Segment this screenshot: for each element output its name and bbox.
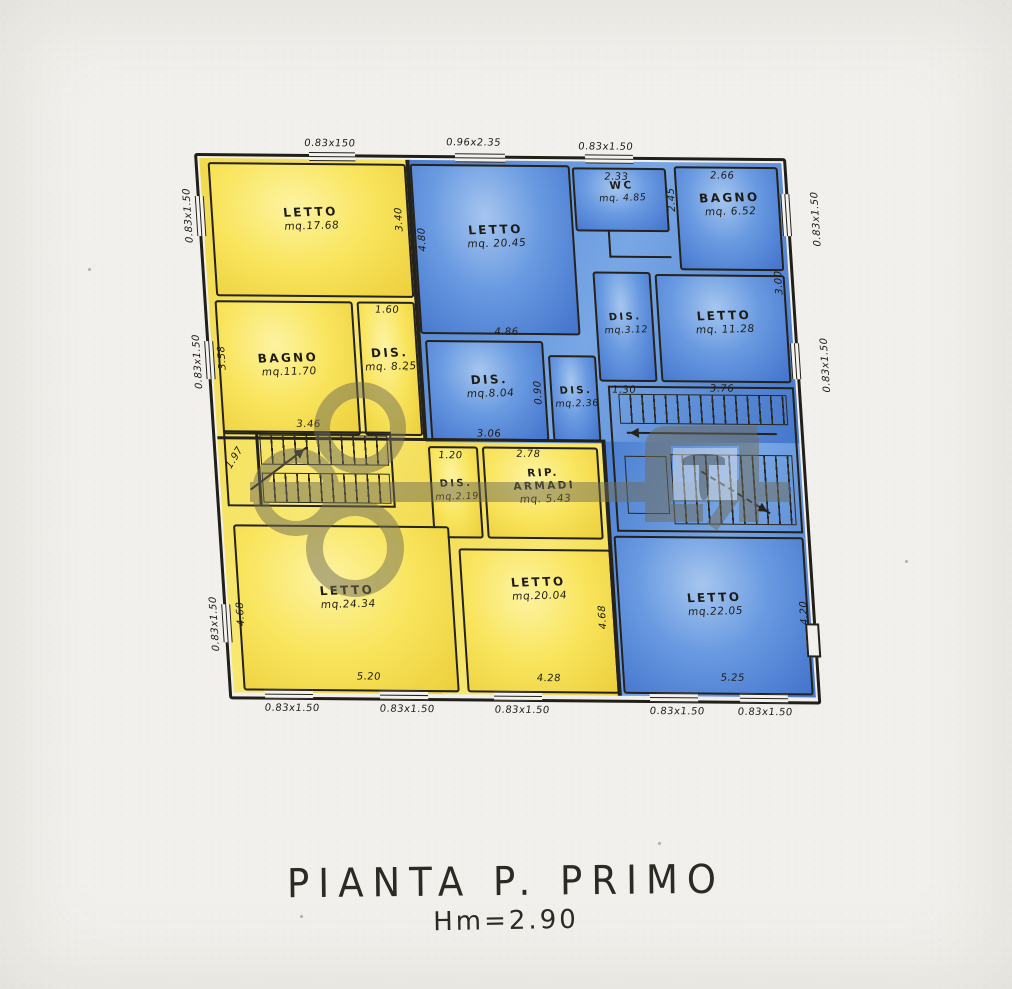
plan-title: PIANTA P. PRIMO — [287, 856, 726, 907]
paper-speck — [88, 268, 91, 271]
dim-label: 3.76 — [710, 384, 735, 395]
room-rip-armadi: RIP. ARMADI mq. 5.43 — [482, 447, 604, 540]
dim-label: 3.58 — [216, 346, 229, 370]
room-area: mq.2.19 — [435, 490, 480, 503]
window-size-label: 0.83x1.50 — [380, 704, 436, 715]
dim-label: 0.90 — [532, 380, 545, 404]
dim-label: 2.78 — [516, 449, 541, 460]
room-letto-nw: LETTO mq.17.68 — [208, 162, 415, 298]
dim-label: 3.40 — [393, 207, 406, 231]
room-dis-c: DIS. mq.8.04 — [425, 340, 549, 441]
room-name: DIS. — [559, 385, 593, 398]
dim-label: 2.66 — [710, 171, 735, 182]
dim-label: 3.06 — [477, 428, 502, 439]
room-name: LETTO — [468, 222, 524, 238]
dim-label: 5.25 — [720, 673, 745, 684]
dim-label: 4.20 — [798, 601, 811, 625]
window-size-label: 0.83x150 — [304, 138, 356, 149]
dim-label: 1.20 — [438, 450, 463, 461]
scanned-floor-plan-page: LETTO mq.17.68 BAGNO mq.11.70 DIS. mq. 8… — [0, 0, 1012, 989]
room-name: LETTO — [283, 204, 339, 220]
staircase-blue — [608, 386, 803, 534]
room-bagno-ne: BAGNO mq. 6.52 — [674, 166, 785, 271]
paper-speck — [405, 368, 408, 371]
room-area: mq. 20.45 — [467, 237, 527, 252]
dim-label: 3.46 — [296, 419, 321, 430]
paper-speck — [300, 915, 303, 918]
room-name: DIS. — [470, 372, 509, 388]
room-name: LETTO — [510, 574, 566, 590]
room-name: LETTO — [696, 308, 752, 324]
dim-label: 4.28 — [536, 673, 561, 684]
room-bagno-w: BAGNO mq.11.70 — [215, 300, 362, 435]
paper-speck — [658, 842, 661, 845]
dim-label: 4.68 — [235, 602, 248, 626]
window-size-label: 0.83x1.50 — [819, 337, 834, 392]
window-size-label: 0.83x1.50 — [495, 705, 551, 716]
window-bottom-1 — [265, 690, 314, 699]
room-area: mq. 11.28 — [695, 323, 755, 338]
stair-landing — [624, 456, 670, 514]
room-area: mq.17.68 — [284, 219, 340, 234]
wc-jog-wall — [608, 230, 672, 259]
room-name: BAGNO — [257, 350, 319, 367]
room-name: LETTO — [686, 590, 742, 606]
room-name: RIP. ARMADI — [503, 466, 585, 494]
dim-label: 2.45 — [666, 187, 679, 211]
dim-label: 4.80 — [416, 227, 429, 251]
dim-label: 4.68 — [597, 605, 610, 629]
window-size-label: 0.83x1.50 — [181, 188, 196, 243]
window-size-label: 0.83x1.50 — [208, 596, 223, 651]
room-name: LETTO — [319, 583, 375, 599]
room-area: mq.8.04 — [466, 387, 515, 401]
window-size-label: 0.83x1.50 — [650, 706, 706, 717]
room-name: DIS. — [439, 478, 473, 491]
window-top-3 — [585, 154, 634, 163]
window-size-label: 0.83x1.50 — [738, 707, 794, 718]
room-area: mq.3.12 — [604, 324, 649, 337]
room-area: mq. 6.52 — [704, 205, 757, 219]
right-wall-notch — [805, 623, 821, 657]
room-letto-s: LETTO mq.20.04 — [458, 548, 619, 693]
room-area: mq. 4.85 — [599, 192, 647, 205]
room-area: mq.11.70 — [261, 365, 317, 380]
room-area: mq.24.34 — [320, 598, 376, 613]
room-letto-se: LETTO mq.22.05 — [614, 536, 814, 696]
window-size-label: 0.83x1.50 — [191, 334, 206, 389]
room-letto-n: LETTO mq. 20.45 — [410, 164, 581, 335]
dim-label: 5.20 — [356, 671, 381, 682]
window-bottom-5 — [740, 694, 789, 703]
floor-plan: LETTO mq.17.68 BAGNO mq.11.70 DIS. mq. 8… — [194, 153, 821, 704]
window-right-1 — [780, 194, 792, 236]
room-name: BAGNO — [698, 190, 760, 207]
dim-label: 3.00 — [773, 270, 786, 294]
room-dis-w: DIS. mq. 8.25 — [357, 301, 424, 436]
window-size-label: 0.83x1.50 — [578, 141, 634, 152]
stair-treads-lower — [262, 473, 392, 504]
room-letto-e: LETTO mq. 11.28 — [655, 274, 792, 383]
window-top-1 — [309, 152, 356, 161]
stair-treads-upper — [618, 394, 788, 425]
dim-label: 4.86 — [494, 327, 519, 338]
window-size-label: 0.96x2.35 — [446, 137, 502, 148]
window-right-2 — [790, 343, 801, 379]
dim-label: 1.30 — [612, 385, 637, 396]
window-top-2 — [455, 153, 506, 162]
room-area: mq.20.04 — [512, 589, 568, 604]
plan-height-note: Hm=2.90 — [433, 905, 579, 938]
window-bottom-2 — [380, 691, 429, 700]
window-size-label: 0.83x1.50 — [265, 703, 321, 714]
room-letto-sw: LETTO mq.24.34 — [233, 524, 460, 692]
room-area: mq.22.05 — [688, 605, 744, 620]
stair-direction-arrow — [627, 432, 777, 435]
window-bottom-3 — [494, 692, 543, 701]
window-size-label: 0.83x1.50 — [809, 191, 824, 246]
room-area: mq. 8.25 — [365, 360, 418, 374]
dim-label: 2.33 — [604, 172, 629, 183]
window-bottom-4 — [650, 693, 699, 702]
room-dis-c2: DIS. mq.2.36 — [548, 355, 602, 441]
paper-speck — [905, 560, 908, 563]
stair-treads-upper — [259, 435, 389, 466]
room-dis-e: DIS. mq.3.12 — [592, 271, 657, 382]
staircase-yellow — [223, 430, 396, 508]
room-name: DIS. — [608, 311, 642, 324]
room-area: mq. 5.43 — [519, 493, 572, 507]
dim-label: 1.60 — [375, 305, 400, 316]
room-area: mq.2.36 — [555, 397, 600, 410]
room-name: DIS. — [370, 345, 409, 361]
